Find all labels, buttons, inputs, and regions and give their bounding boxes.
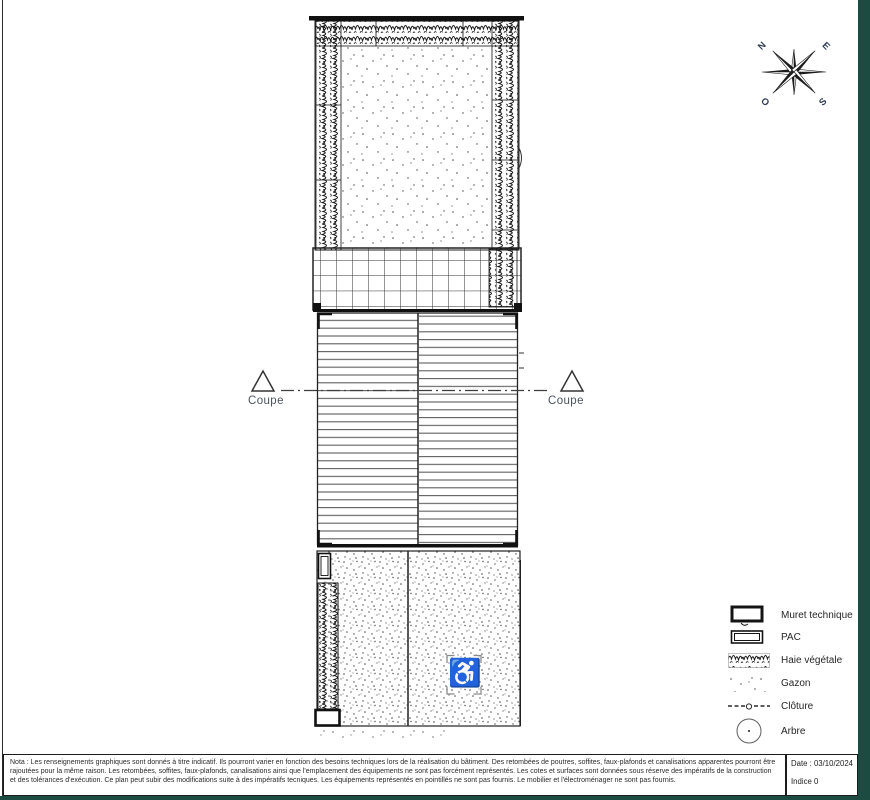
compass-rose-icon: N E S O [751,28,837,116]
legend-item-haie-vegetale: Haie végétale [725,649,842,671]
compass-south-label: S [817,96,829,108]
hedge-top [315,21,519,46]
muret-technique-box [316,710,340,726]
legend-item-muret-technique: Muret technique [725,604,853,626]
legend-item-cloture: Clôture [725,695,813,717]
hedge-left [316,21,341,250]
terrace-grid [313,248,522,312]
wheelchair-icon: ♿ [447,653,483,693]
garden-block [309,16,524,250]
gravel-yard [316,551,521,738]
date-box: Date : 03/10/2024 Indice 0 [786,754,858,796]
coupe-label-right: Coupe [548,395,584,407]
gazon-icon [725,675,773,692]
legend-label: Muret technique [781,610,853,621]
legend-label: Clôture [781,701,813,712]
legend-label: Haie végétale [781,655,842,666]
hedge-right [492,21,518,250]
north-boundary-wall [309,16,524,21]
legend-item-gazon: Gazon [725,672,810,694]
sheet-edge-line [2,0,3,796]
legend-item-pac: PAC [725,626,801,648]
section-triangle-left [252,371,274,391]
compass-north-label: N [756,40,769,53]
indice-value: Indice 0 [791,777,853,786]
compass-east-label: E [820,40,832,52]
legend-label: Gazon [781,678,810,689]
hedge-yard-left [318,583,338,709]
haie-vegetale-icon [725,652,773,669]
arbre-icon [725,717,773,745]
date-value: Date : 03/10/2024 [791,759,853,768]
hedge-terrace-right [489,249,517,307]
pac-icon [725,628,773,646]
nota-box: Nota : Les renseignements graphiques son… [3,754,786,796]
nota-text: Nota : Les renseignements graphiques son… [10,758,779,786]
building-roof [317,313,524,548]
muret-technique-icon [725,604,773,626]
legend: Muret technique PAC Haie végétale [725,600,865,750]
legend-label: Arbre [781,726,805,737]
legend-item-arbre: Arbre [725,717,805,745]
viewer-background-bottom [0,796,870,800]
compass-west-label: O [758,96,771,109]
section-triangle-right [561,371,583,391]
lawn-area [341,46,492,250]
viewer-background-right [858,0,870,800]
drawing-sheet: N E S O Coupe Coupe ♿ Muret technique [0,0,870,800]
legend-label: PAC [781,632,801,643]
coupe-label-left: Coupe [248,395,284,407]
cloture-icon [725,700,773,712]
